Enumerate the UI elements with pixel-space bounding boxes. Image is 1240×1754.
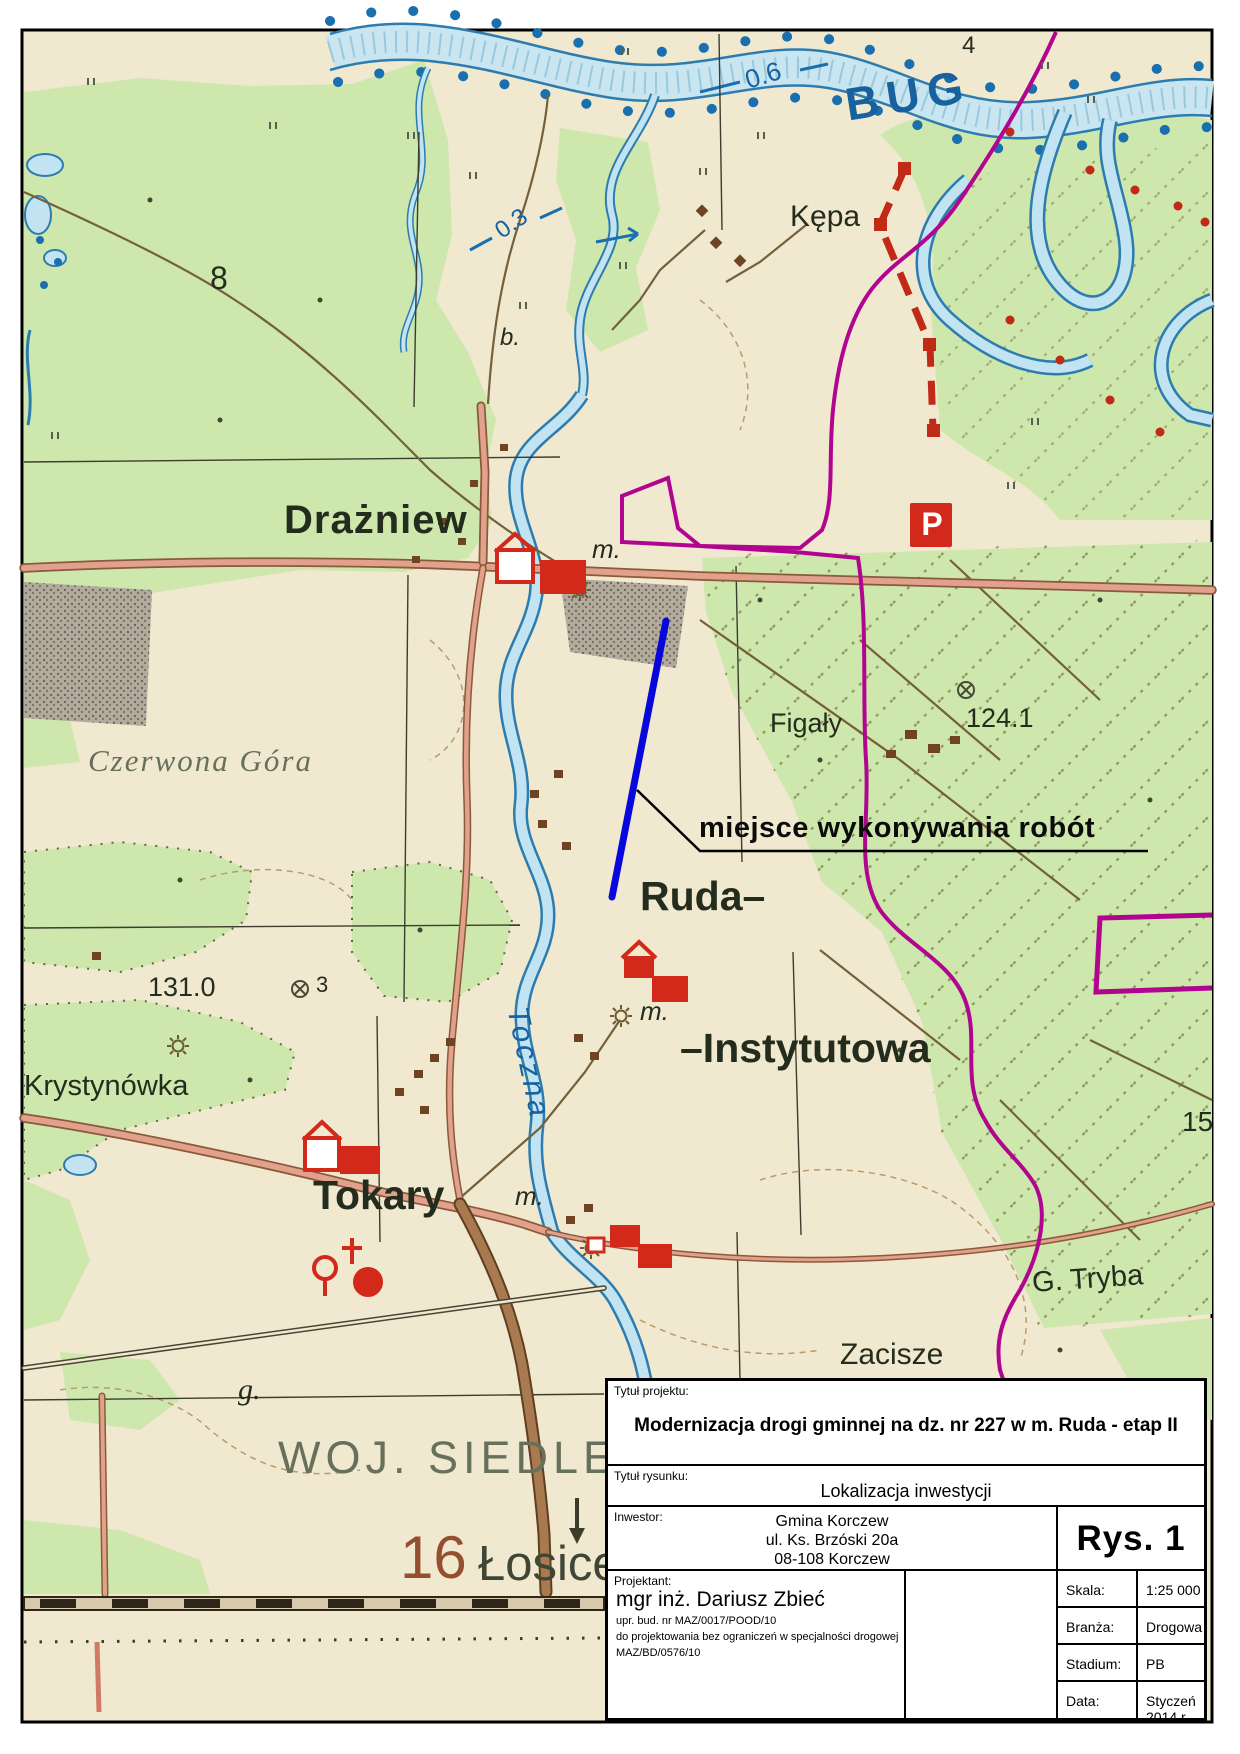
map-label-b: b. [500,326,520,350]
map-label-ruda: Ruda– [640,876,765,917]
designer-cert-3: MAZ/BD/0576/10 [616,1647,700,1659]
scale-row: Skala: 1:25 000 [1058,1571,1204,1608]
drawing-number-cell: Rys. 1 [1058,1507,1204,1569]
map-drawing-page: BUG 0.6 0.3 4 Kępa b. 8 Drażniew m. Czer… [0,0,1240,1754]
map-label-krystynowka: Krystynówka [24,1072,188,1101]
designer-label: Projektant: [614,1574,671,1588]
branch-row: Branża: Drogowa [1058,1608,1204,1645]
title-block: Tytuł projektu: Modernizacja drogi gminn… [605,1378,1207,1721]
map-label-16: 16 [400,1528,467,1588]
investor-cell: Inwestor: Gmina Korczew ul. Ks. Brzóski … [608,1507,1058,1569]
scale-value: 1:25 000 [1136,1571,1204,1608]
stage-value: PB [1136,1645,1204,1682]
map-label-losice: Łosice [478,1540,620,1589]
designer-cert-1: upr. bud. nr MAZ/0017/POOD/10 [616,1615,776,1627]
designer-name: mgr inż. Dariusz Zbieć [616,1588,825,1612]
map-label-tokary: Tokary [313,1175,444,1216]
investor-city: 08-108 Korczew [608,1551,1056,1569]
map-label-g: g. [238,1375,261,1405]
map-label-m1: m. [592,536,621,562]
drawing-number: Rys. 1 [1058,1519,1204,1559]
map-label-15: 15 [1182,1108,1213,1136]
project-title-label: Tytuł projektu: [614,1384,689,1398]
date-row: Data: Styczeń 2014 r. [1058,1682,1204,1719]
title-block-project-row: Tytuł projektu: Modernizacja drogi gminn… [608,1381,1204,1466]
signature-cell [906,1571,1058,1721]
investor-name: Gmina Korczew [608,1513,1056,1531]
project-title: Modernizacja drogi gminnej na dz. nr 227… [608,1415,1204,1437]
map-label-zacisze: Zacisze [840,1340,943,1370]
map-label-contour-4: 4 [962,34,975,58]
title-block-designer-row: Projektant: mgr inż. Dariusz Zbieć upr. … [608,1571,1204,1721]
stage-row: Stadium: PB [1058,1645,1204,1682]
title-block-investor-row: Inwestor: Gmina Korczew ul. Ks. Brzóski … [608,1507,1204,1571]
map-label-m2: m. [640,998,669,1024]
work-location-annotation: miejsce wykonywania robót [699,814,1095,843]
designer-cert-2: do projektowania bez ograniczeń w specja… [616,1631,899,1643]
date-value: Styczeń 2014 r. [1136,1682,1204,1719]
stage-label: Stadium: [1066,1656,1121,1672]
investor-street: ul. Ks. Brzóski 20a [608,1532,1056,1550]
branch-label: Branża: [1066,1619,1114,1635]
drawing-title: Lokalizacja inwestycji [608,1481,1204,1502]
designer-cell: Projektant: mgr inż. Dariusz Zbieć upr. … [608,1571,906,1721]
parking-symbol-letter: P [918,508,946,540]
scale-label: Skala: [1066,1582,1105,1598]
branch-value: Drogowa [1136,1608,1204,1645]
map-label-figaly: Figały [770,710,842,737]
map-label-road-8: 8 [210,262,228,294]
map-label-elev-1241: 124.1 [966,705,1034,732]
map-label-instytutowa: –Instytutowa [680,1028,931,1069]
map-label-kepa: Kępa [790,202,860,232]
map-label-m3: m. [515,1183,544,1209]
map-label-3: 3 [316,974,328,996]
map-label-drazniew: Drażniew [284,500,468,540]
title-block-drawing-row: Tytuł rysunku: Lokalizacja inwestycji [608,1466,1204,1507]
map-label-czerwona-gora: Czerwona Góra [88,745,313,776]
date-label: Data: [1066,1693,1099,1709]
map-label-elev-1310: 131.0 [148,974,216,1001]
